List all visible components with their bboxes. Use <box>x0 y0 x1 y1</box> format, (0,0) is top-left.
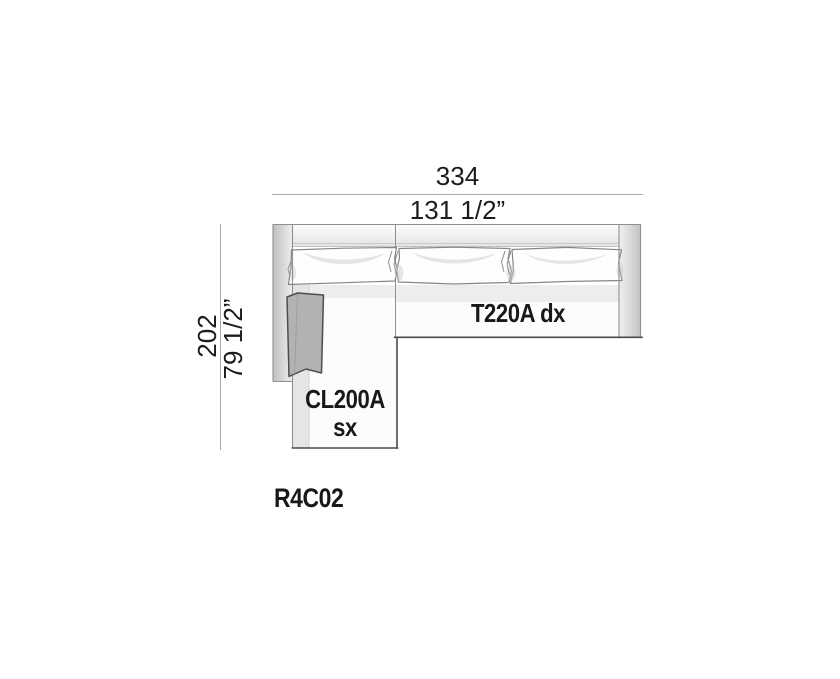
back-cushion-3 <box>511 247 623 283</box>
technical-drawing-canvas: 334 131 1/2” 202 79 1/2” T220A dx CL200A… <box>0 0 840 679</box>
module-label-t220a: T220A dx <box>471 299 565 327</box>
module-label-cl200a-side: sx <box>305 413 385 441</box>
back-cushion-2 <box>397 247 512 284</box>
back-cushions <box>289 247 623 284</box>
module-label-cl200a: CL200A sx <box>305 385 385 441</box>
armrest-pillow-shape <box>287 293 324 377</box>
sofa-plan-drawing <box>0 0 840 679</box>
product-code: R4C02 <box>274 484 343 512</box>
armrest-pillow <box>287 293 324 377</box>
module-label-cl200a-code: CL200A <box>305 385 385 413</box>
width-dimension-inches: 131 1/2” <box>272 197 643 223</box>
width-dimension-cm: 334 <box>272 163 643 189</box>
